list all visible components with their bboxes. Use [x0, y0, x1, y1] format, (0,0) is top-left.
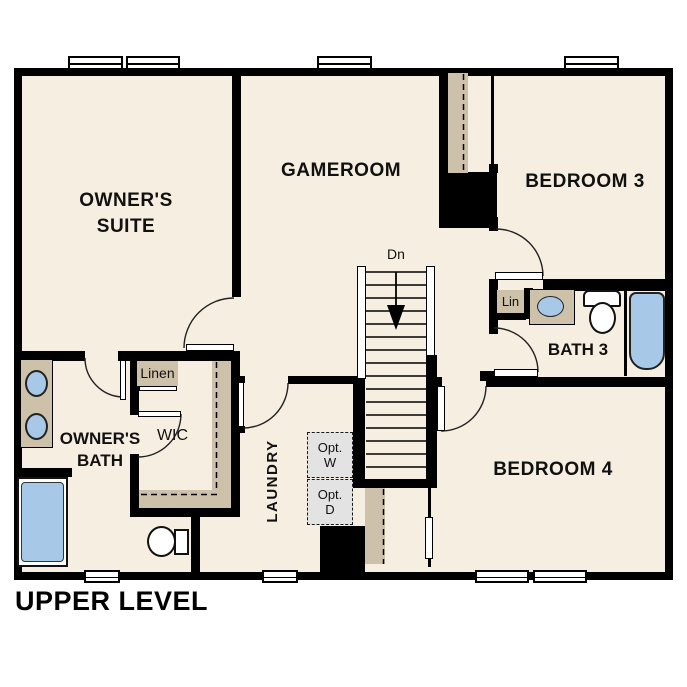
laundry-door: [238, 382, 244, 427]
optional-dryer: Opt. D: [307, 479, 353, 525]
chase-block-south: [320, 526, 365, 576]
window-bedroom3: [564, 56, 619, 70]
wall-toilet-nook-east: [191, 511, 200, 580]
label-bedroom4: BEDROOM 4: [463, 457, 643, 483]
label-owners-bath-line1: OWNER'S: [60, 428, 141, 450]
window-suite-1: [68, 56, 123, 70]
stair-rail-east: [426, 266, 435, 356]
optional-washer: Opt. W: [307, 432, 353, 478]
wall-stair-south: [358, 479, 437, 488]
bedroom4-door: [437, 386, 445, 431]
floor-plan: Linen Lin Opt. W Opt. D: [0, 0, 687, 687]
bedroom4-closet-shelf: [365, 488, 385, 564]
window-laundry: [262, 570, 298, 583]
wall-bedroom3-door-stub: [489, 217, 498, 231]
wall-suite-east: [232, 76, 241, 297]
optional-washer-line2: W: [324, 455, 336, 470]
label-bath3-text: BATH 3: [548, 340, 608, 360]
linen-closet: Linen: [137, 361, 178, 386]
laundry-door-jamb-bottom: [237, 426, 245, 433]
label-bedroom3: BEDROOM 3: [495, 169, 675, 195]
owners-toilet-tank: [174, 529, 189, 555]
wic-shelf-south: [139, 490, 231, 508]
label-stairs-down-text: Dn: [387, 247, 405, 262]
owners-shower-pan: [21, 482, 64, 562]
owners-suite-door: [186, 344, 234, 351]
wall-bedroom4-north-stub: [432, 377, 442, 386]
label-laundry: LAUNDRY: [262, 431, 282, 531]
label-owners-suite-line1: OWNER'S: [79, 188, 173, 214]
wall-stair-west: [353, 376, 365, 488]
label-gameroom-text: GAMEROOM: [281, 158, 401, 184]
lin-label: Lin: [502, 294, 519, 309]
owners-toilet-bowl: [147, 526, 176, 557]
wic-shelf-east: [212, 361, 231, 492]
optional-washer-line1: Opt.: [318, 440, 343, 455]
window-gameroom: [317, 56, 372, 70]
linen-shelf-edge: [139, 386, 177, 391]
stair-down-arrow: [387, 305, 405, 330]
bedroom3-closet-door-track: [491, 76, 494, 168]
plan-title: UPPER LEVEL: [15, 586, 208, 617]
optional-dryer-line1: Opt.: [318, 487, 343, 502]
label-wic: WIC: [145, 426, 200, 446]
label-owners-suite: OWNER'S SUITE: [40, 187, 212, 241]
lin-closet: Lin: [497, 290, 524, 313]
wall-tub-divider: [624, 289, 627, 376]
linen-label: Linen: [140, 366, 174, 381]
vanity-sink-1: [25, 370, 48, 397]
window-bedroom4-1: [475, 570, 529, 583]
wall-stair-east: [426, 355, 437, 488]
label-bedroom3-text: BEDROOM 3: [525, 169, 645, 195]
bedroom3-door: [495, 272, 543, 280]
optional-dryer-line2: D: [325, 502, 334, 517]
bedroom4-closet-jamb-top: [428, 488, 431, 518]
owners-bath-door: [120, 360, 126, 400]
label-gameroom: GAMEROOM: [255, 158, 427, 184]
label-owners-bath: OWNER'S BATH: [45, 428, 155, 472]
plan-title-text: UPPER LEVEL: [15, 586, 208, 616]
label-owners-suite-line2: SUITE: [97, 214, 155, 240]
wall-wic-south: [130, 507, 240, 517]
label-laundry-text: LAUNDRY: [264, 439, 281, 522]
window-owners-bath: [84, 570, 120, 583]
bath3-sink: [537, 296, 564, 317]
label-stairs-down: Dn: [378, 246, 414, 262]
bath3-tub: [629, 292, 665, 370]
bath3-toilet-bowl: [589, 302, 616, 334]
label-owners-bath-line2: BATH: [77, 450, 123, 472]
bedroom4-closet-door: [425, 517, 433, 559]
stair-rail-west: [357, 266, 366, 379]
wall-lin-south: [494, 312, 526, 320]
window-bedroom4-2: [533, 570, 587, 583]
bedroom3-closet-shelf: [448, 73, 468, 173]
label-wic-text: WIC: [157, 426, 188, 446]
window-suite-2: [126, 56, 180, 70]
bath3-door: [494, 369, 538, 377]
label-bath3: BATH 3: [530, 340, 626, 360]
wall-bedroom4-north: [486, 377, 673, 387]
label-bedroom4-text: BEDROOM 4: [493, 457, 613, 483]
wic-door: [138, 411, 181, 417]
